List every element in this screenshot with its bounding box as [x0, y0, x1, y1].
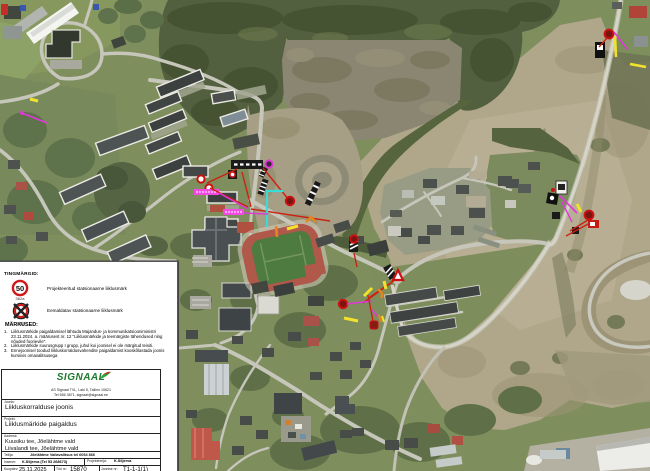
- svg-text:50: 50: [16, 284, 24, 293]
